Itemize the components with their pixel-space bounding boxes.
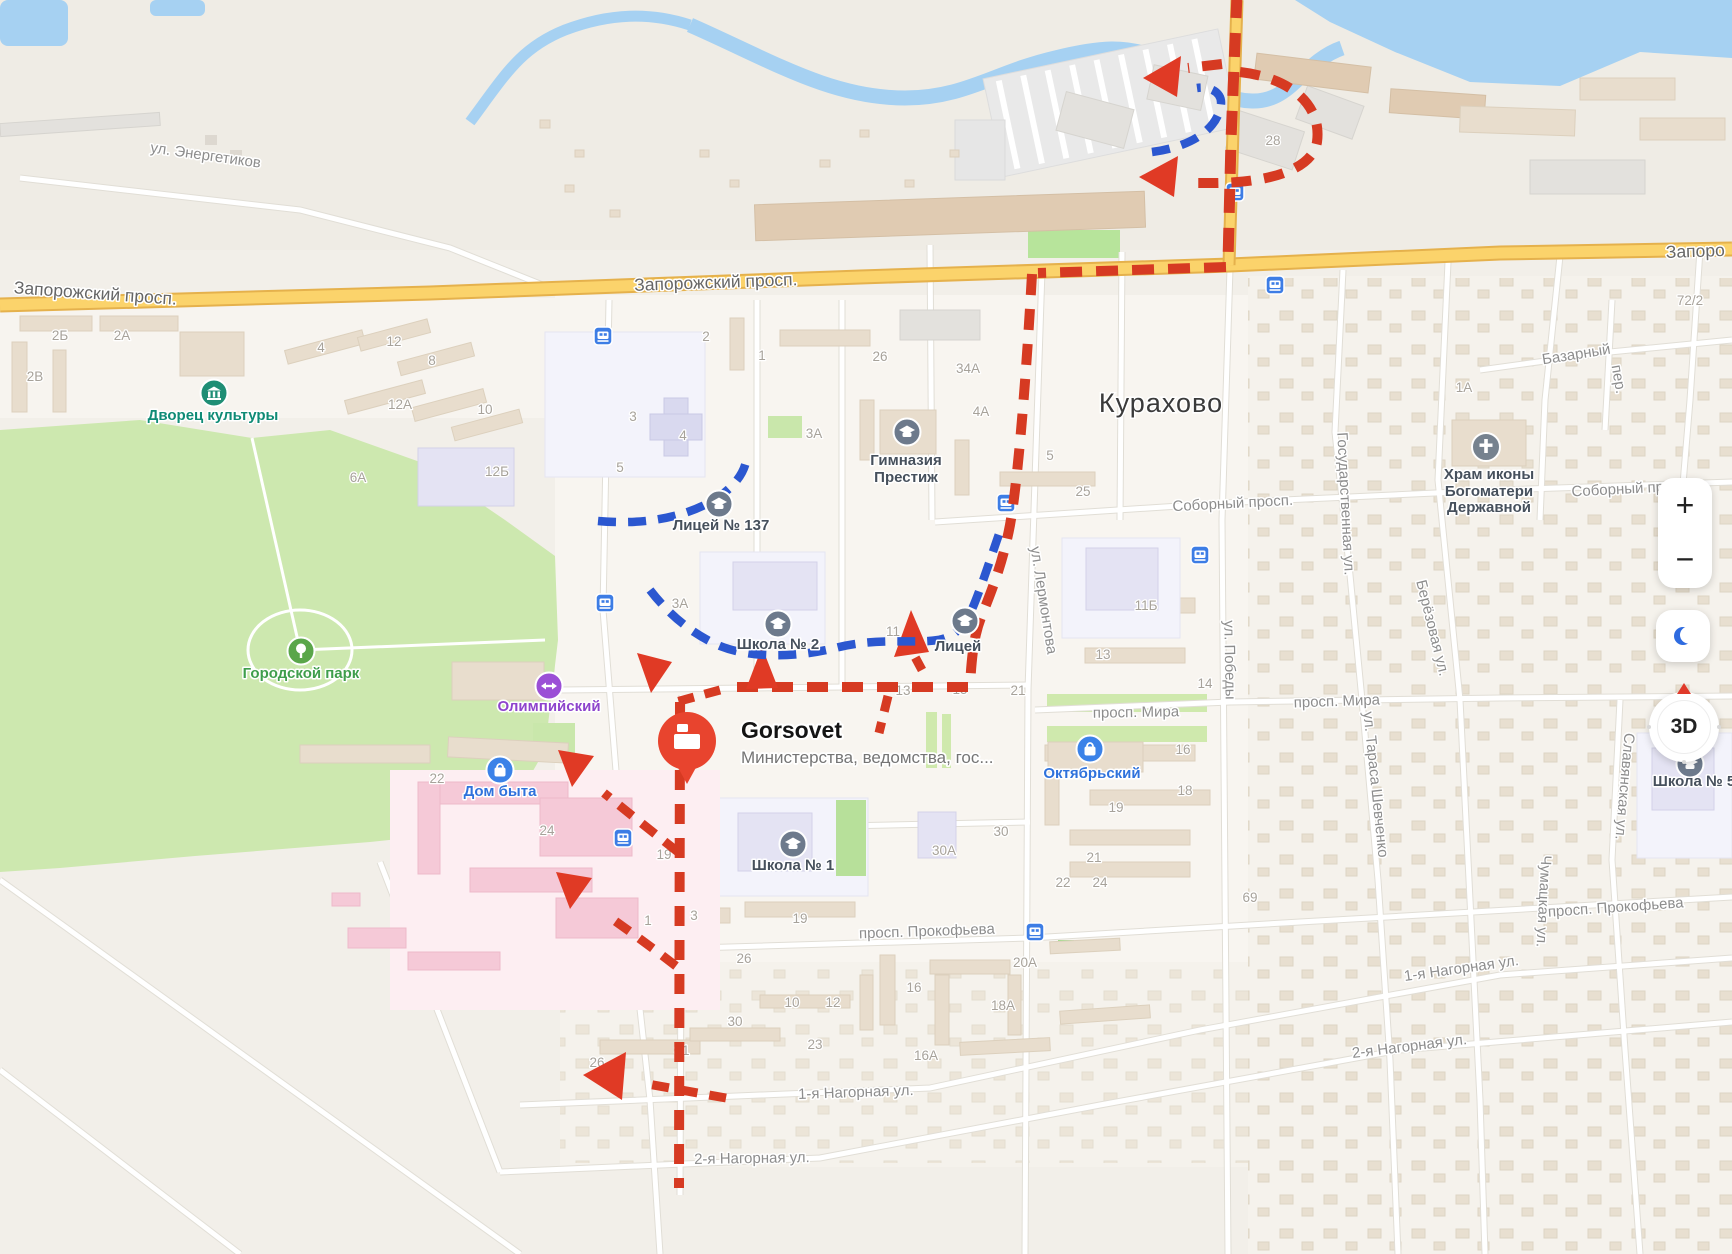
svg-text:16: 16 — [1175, 742, 1190, 757]
svg-text:34А: 34А — [956, 361, 980, 376]
green-court1 — [768, 416, 802, 438]
school2-label[interactable]: Школа № 2 — [737, 636, 819, 653]
svg-text:72/2: 72/2 — [1677, 293, 1703, 308]
svg-text:16А: 16А — [914, 1048, 938, 1063]
svg-text:2-я Нагорная ул.: 2-я Нагорная ул. — [694, 1149, 810, 1168]
crescent-icon — [1670, 623, 1696, 649]
svg-text:20А: 20А — [1013, 955, 1037, 970]
bus-stop-icon[interactable] — [614, 829, 632, 847]
school5-label[interactable]: Школа № 5 — [1653, 773, 1732, 790]
svg-text:24: 24 — [539, 823, 555, 838]
svg-text:4: 4 — [317, 340, 325, 355]
svg-text:3: 3 — [690, 908, 698, 923]
map-canvas[interactable]: 2Б 2А 2В 4 12 8 12А 10 12Б 6А 3 4 5 2 1 … — [0, 0, 1732, 1254]
svg-text:3А: 3А — [672, 596, 689, 611]
lyceum-label[interactable]: Лицей — [935, 638, 982, 655]
svg-text:10: 10 — [784, 995, 799, 1010]
svg-text:просп. Мира: просп. Мира — [1293, 691, 1381, 711]
gymnasium-label1[interactable]: Гимназия — [870, 452, 941, 469]
svg-text:2А: 2А — [114, 328, 131, 343]
svg-text:30: 30 — [727, 1014, 742, 1029]
svg-text:2В: 2В — [27, 369, 44, 384]
svg-text:30А: 30А — [932, 843, 956, 858]
gymnasium-label2[interactable]: Престиж — [874, 469, 938, 486]
svg-text:11: 11 — [886, 624, 900, 639]
svg-text:26: 26 — [736, 951, 751, 966]
svg-text:4А: 4А — [973, 404, 990, 419]
svg-text:26: 26 — [872, 349, 887, 364]
gymnasium-icon[interactable] — [894, 419, 921, 446]
svg-text:28: 28 — [1265, 133, 1280, 148]
zoom-control[interactable]: + − — [1658, 478, 1712, 588]
olympic-label[interactable]: Олимпийский — [497, 698, 600, 715]
north-needle-icon — [1677, 683, 1691, 694]
park-label[interactable]: Городской парк — [243, 665, 360, 682]
olympic-sport-icon[interactable] — [536, 673, 563, 700]
svg-text:8: 8 — [428, 353, 436, 368]
compass-3d-control[interactable]: 3D — [1649, 692, 1719, 762]
svg-text:12: 12 — [825, 995, 840, 1010]
oktyabrsky-label[interactable]: Октябрьский — [1043, 765, 1140, 782]
svg-text:6А: 6А — [350, 470, 367, 485]
oktyabrsky-icon[interactable] — [1077, 736, 1104, 763]
svg-text:19: 19 — [792, 911, 807, 926]
svg-text:18А: 18А — [991, 998, 1015, 1013]
svg-text:19: 19 — [1108, 800, 1123, 815]
svg-text:12: 12 — [386, 334, 401, 349]
palace-of-culture-icon[interactable] — [201, 380, 228, 407]
dom-byta-icon[interactable] — [487, 757, 514, 784]
pond1 — [0, 0, 68, 46]
svg-text:1: 1 — [758, 348, 766, 363]
mira-lawn2 — [1047, 726, 1207, 742]
map-stage[interactable]: 2Б 2А 2В 4 12 8 12А 10 12Б 6А 3 4 5 2 1 … — [0, 0, 1732, 1254]
svg-text:23: 23 — [807, 1037, 822, 1052]
svg-text:4: 4 — [679, 428, 687, 443]
zoom-out-button[interactable]: − — [1658, 532, 1712, 586]
lyceum137-label[interactable]: Лицей № 137 — [673, 517, 770, 534]
church-label2[interactable]: Богоматери — [1445, 483, 1533, 500]
bus-stop-icon[interactable] — [1191, 546, 1209, 564]
svg-text:22: 22 — [1055, 875, 1070, 890]
church-icon[interactable] — [1472, 433, 1500, 461]
dom-byta-label[interactable]: Дом быта — [464, 783, 538, 800]
school1-label[interactable]: Школа № 1 — [752, 857, 834, 874]
gorsovet-subtitle: Министерства, ведомства, гос... — [741, 748, 994, 767]
park-icon[interactable] — [288, 638, 315, 665]
svg-text:24: 24 — [1092, 875, 1108, 890]
svg-text:5: 5 — [616, 460, 624, 475]
bus-stop-icon[interactable] — [594, 327, 612, 345]
lyceum137-icon[interactable] — [706, 491, 733, 518]
green-strip — [1028, 230, 1120, 258]
svg-text:30: 30 — [993, 824, 1008, 839]
bus-stop-icon[interactable] — [1026, 923, 1044, 941]
svg-text:10: 10 — [477, 402, 492, 417]
church-label1[interactable]: Храм иконы — [1444, 466, 1534, 483]
compass-3d-label[interactable]: 3D — [1657, 700, 1711, 754]
svg-text:просп. Мира: просп. Мира — [1093, 703, 1180, 722]
city-label: Курахово — [1099, 388, 1223, 418]
svg-text:5: 5 — [1046, 448, 1054, 463]
night-mode-button[interactable] — [1656, 610, 1710, 662]
svg-text:25: 25 — [1075, 484, 1090, 499]
svg-text:2Б: 2Б — [52, 328, 69, 343]
svg-text:18: 18 — [1177, 783, 1192, 798]
bus-stop-icon[interactable] — [596, 594, 614, 612]
svg-text:ул. Победы: ул. Победы — [1220, 620, 1238, 700]
svg-text:Запоро: Запоро — [1665, 240, 1725, 262]
palace-label[interactable]: Дворец культуры — [148, 407, 279, 424]
zoom-in-button[interactable]: + — [1658, 478, 1712, 532]
svg-text:69: 69 — [1242, 890, 1257, 905]
svg-text:21: 21 — [1010, 683, 1025, 698]
church-label3[interactable]: Державной — [1447, 499, 1531, 516]
svg-text:1А: 1А — [1456, 380, 1473, 395]
svg-text:3А: 3А — [806, 426, 823, 441]
svg-text:14: 14 — [1197, 676, 1213, 691]
school1-icon[interactable] — [780, 831, 807, 858]
bus-stop-icon[interactable] — [1266, 276, 1284, 294]
pond2 — [150, 0, 205, 16]
svg-text:21: 21 — [1086, 850, 1101, 865]
school2-icon[interactable] — [765, 611, 792, 638]
svg-text:22: 22 — [429, 771, 444, 786]
lyceum-icon[interactable] — [952, 608, 979, 635]
svg-text:3: 3 — [629, 409, 637, 424]
hospital-complex — [332, 770, 720, 1010]
gorsovet-title[interactable]: Gorsovet — [741, 717, 842, 743]
svg-text:16: 16 — [906, 980, 921, 995]
svg-text:12А: 12А — [388, 397, 412, 412]
svg-text:11Б: 11Б — [1135, 598, 1158, 613]
svg-text:2: 2 — [702, 329, 710, 344]
svg-text:13: 13 — [1095, 647, 1110, 662]
svg-text:1: 1 — [644, 913, 652, 928]
svg-text:12Б: 12Б — [485, 464, 509, 479]
